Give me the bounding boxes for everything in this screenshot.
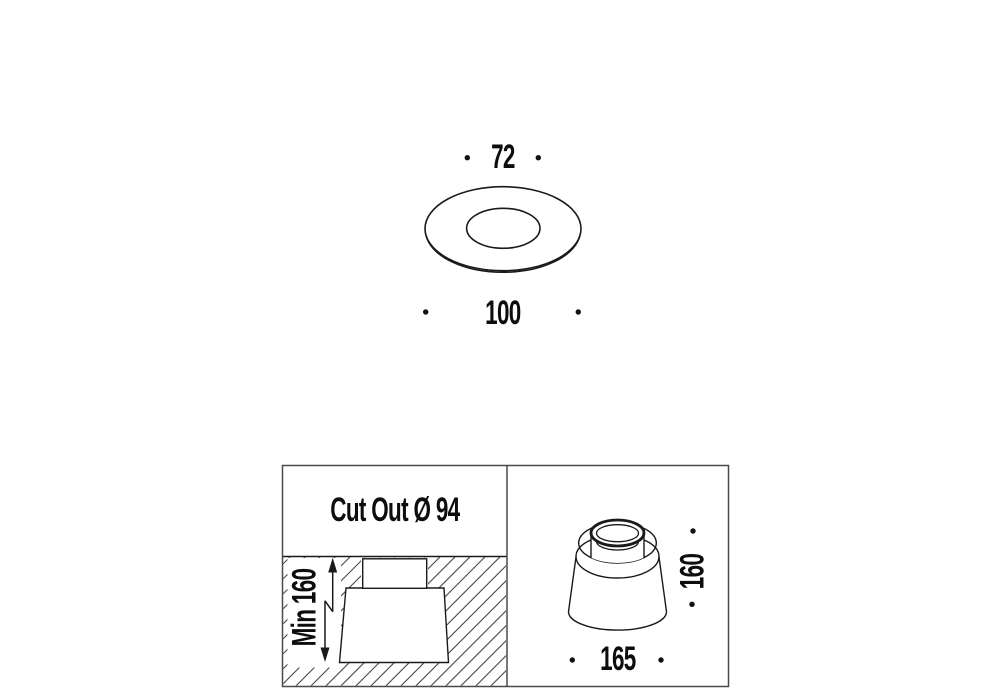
fixture-neck-section	[363, 559, 427, 589]
technical-drawing-canvas: 72 100 Cut Out Ø 94 Min 160 160 165	[0, 0, 1000, 700]
dim-dot	[658, 657, 663, 662]
disc-inner-ellipse	[467, 208, 540, 248]
dim-dot	[690, 528, 695, 533]
dim-dot	[689, 602, 694, 607]
dim-dot	[570, 657, 575, 662]
top-view-disc	[425, 187, 581, 273]
drawing-linework	[0, 0, 1000, 700]
disc-rim-thickness-arc	[426, 235, 580, 272]
top-view-dim-dots	[423, 155, 581, 315]
dim-dot	[423, 309, 428, 314]
installation-cross-section	[283, 557, 507, 686]
housing-3d-view	[569, 520, 667, 630]
fixture-body-section	[340, 588, 449, 663]
dim-dot	[465, 155, 470, 160]
disc-outer-ellipse	[425, 187, 581, 271]
dim-dot	[576, 309, 581, 314]
dim-dot	[536, 155, 541, 160]
